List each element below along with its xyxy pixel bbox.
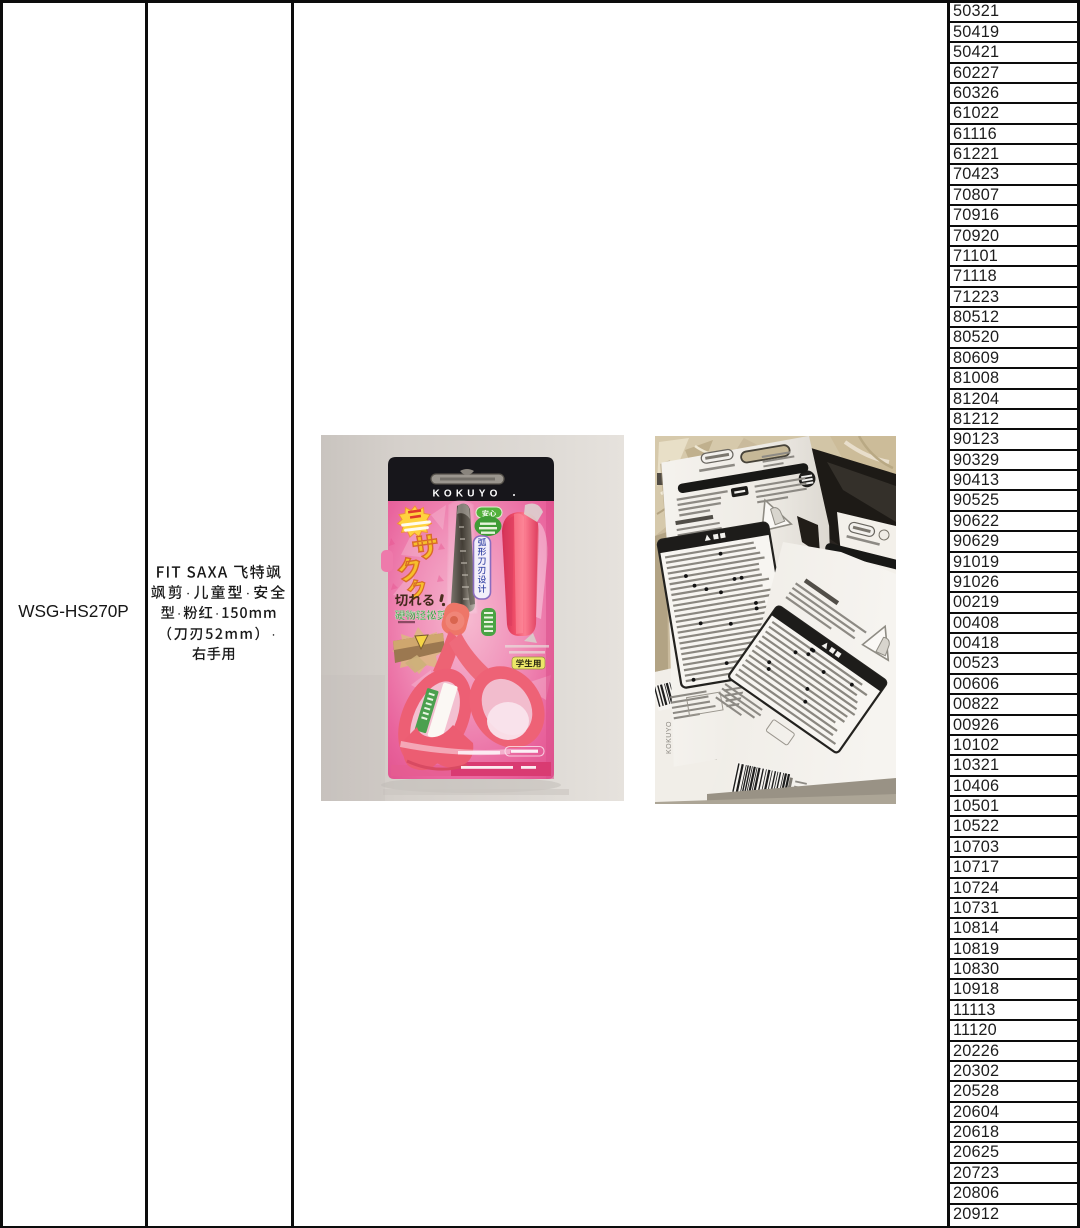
svg-text:KOKUYO: KOKUYO [666, 721, 673, 754]
svg-text:KOKUYO: KOKUYO [432, 489, 501, 500]
